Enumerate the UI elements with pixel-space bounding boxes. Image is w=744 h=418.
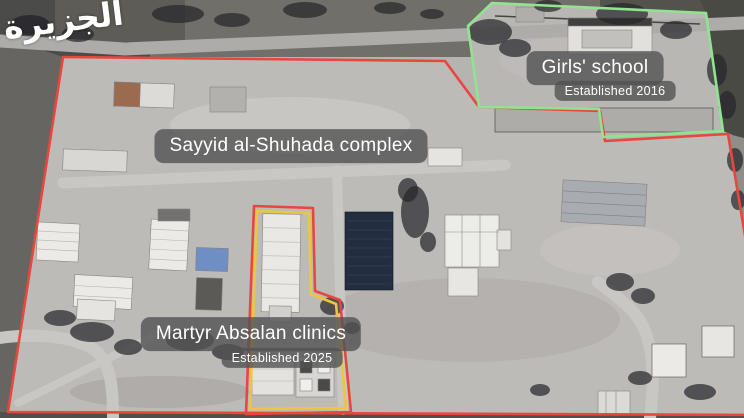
blue-roof-building [196, 247, 229, 271]
clinics-established-label: Established 2025 [222, 348, 343, 368]
news-graphic: الجزيرة Sayyid al-Shuhada complex Girls'… [0, 0, 744, 418]
school-established-label: Established 2016 [555, 81, 676, 101]
clinics-label: Martyr Absalan clinics [141, 317, 361, 351]
warehouse-building [114, 82, 175, 108]
solar-array [345, 212, 393, 290]
clinic-building [261, 214, 301, 323]
complex-label: Sayyid al-Shuhada complex [154, 129, 427, 163]
bottom-building [598, 391, 630, 414]
right-building [561, 180, 647, 226]
